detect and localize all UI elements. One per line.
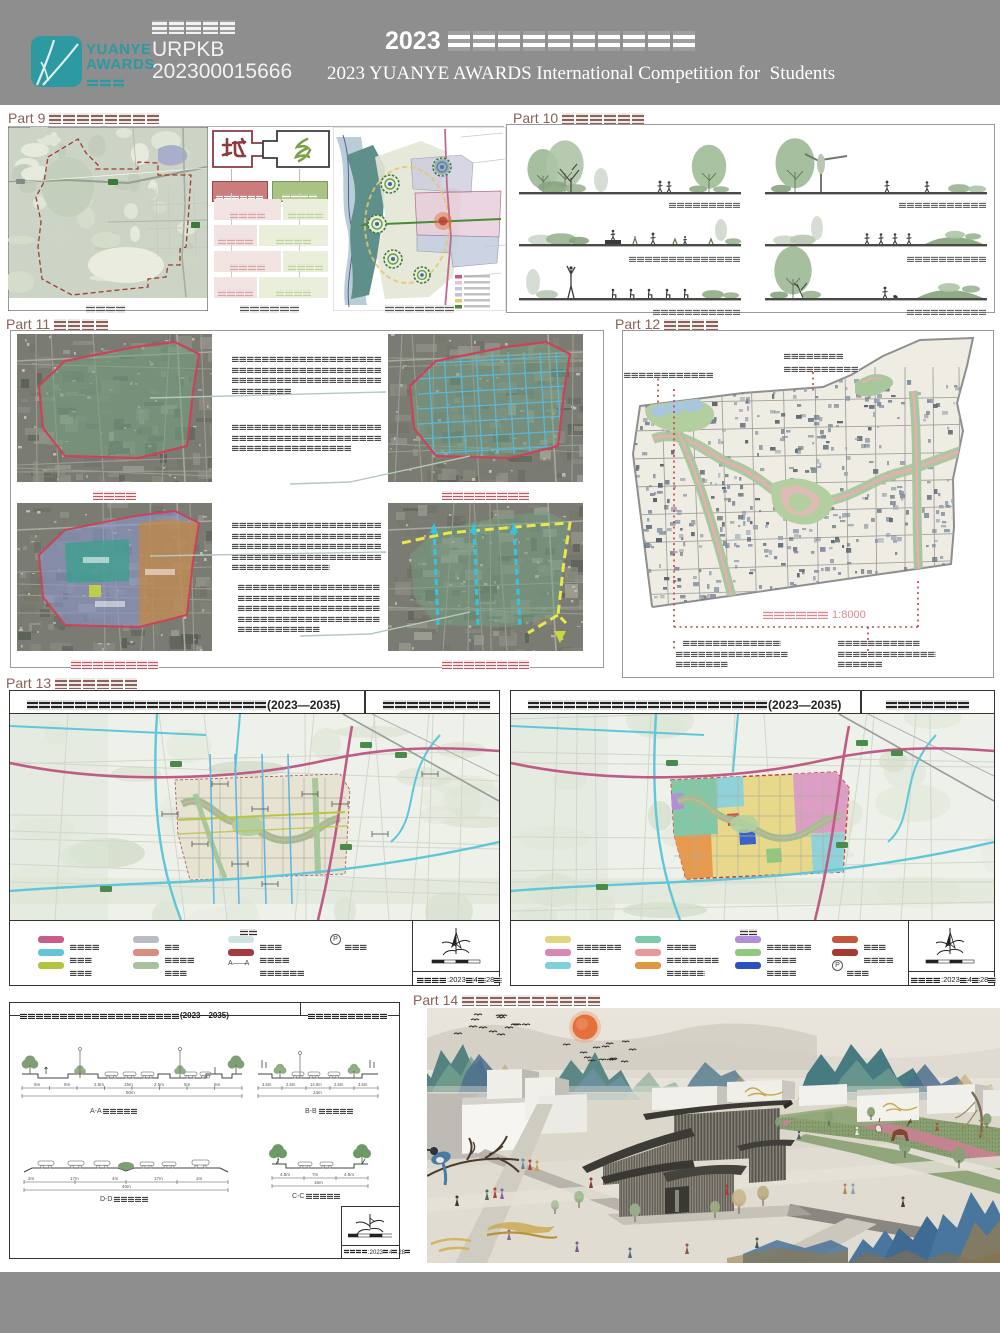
svg-text:2.5m: 2.5m: [334, 1082, 344, 1087]
svg-text:4m: 4m: [112, 1176, 119, 1181]
svg-text:16m: 16m: [314, 1180, 323, 1185]
svg-text:2.5m: 2.5m: [94, 1082, 104, 1087]
svg-text:5m: 5m: [64, 1082, 71, 1087]
svg-text:17m: 17m: [154, 1176, 163, 1181]
svg-text:14.0m: 14.0m: [310, 1082, 322, 1087]
svg-text:5m: 5m: [214, 1082, 221, 1087]
svg-text:2.5m: 2.5m: [286, 1082, 296, 1087]
svg-text:5m: 5m: [184, 1082, 191, 1087]
svg-text:24m: 24m: [313, 1090, 322, 1095]
svg-text:15m: 15m: [124, 1082, 133, 1087]
svg-text:7m: 7m: [312, 1172, 319, 1177]
svg-text:2.5m: 2.5m: [154, 1082, 164, 1087]
svg-text:3.5m: 3.5m: [358, 1082, 368, 1087]
svg-text:2m: 2m: [196, 1176, 203, 1181]
svg-text:4.5m: 4.5m: [344, 1172, 354, 1177]
svg-text:4.5m: 4.5m: [280, 1172, 290, 1177]
svg-text:50m: 50m: [126, 1090, 135, 1095]
svg-text:5m: 5m: [34, 1082, 41, 1087]
svg-text:40m: 40m: [122, 1184, 131, 1189]
svg-text:17m: 17m: [70, 1176, 79, 1181]
svg-text:3.5m: 3.5m: [262, 1082, 272, 1087]
svg-text:2m: 2m: [28, 1176, 35, 1181]
